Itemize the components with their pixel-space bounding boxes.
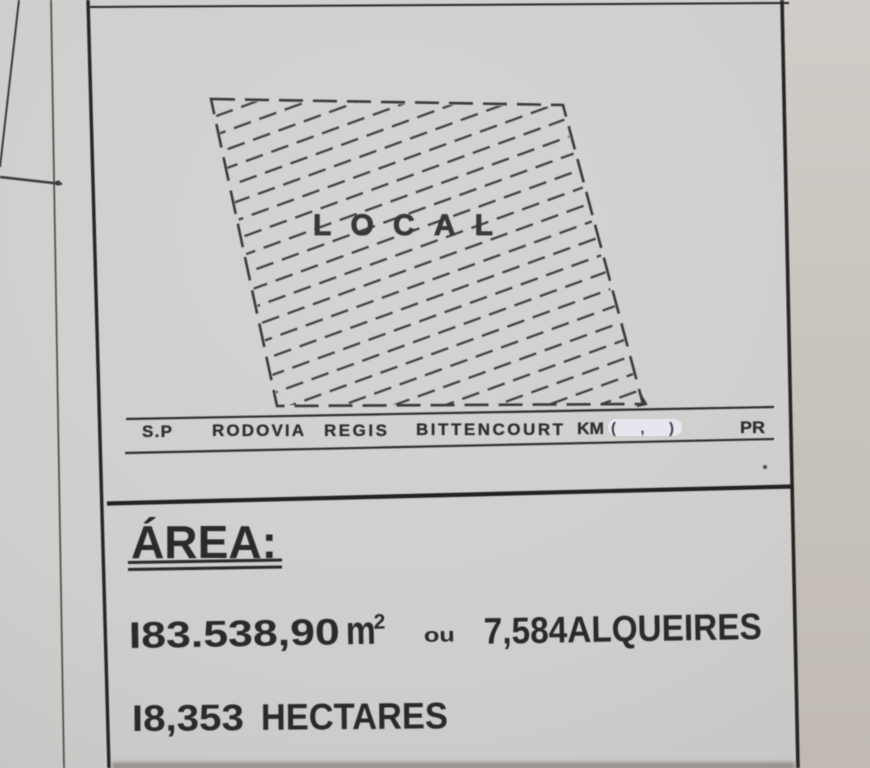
svg-text:REGIS: REGIS (324, 421, 387, 440)
svg-text:ou: ou (424, 624, 455, 647)
svg-text:PR: PR (740, 418, 765, 437)
svg-text:7,584ALQUEIRES: 7,584ALQUEIRES (483, 606, 762, 652)
svg-text:I83.538,90: I83.538,90 (128, 611, 340, 656)
svg-text:I8,353: I8,353 (132, 697, 244, 739)
svg-text:S.P: S.P (142, 422, 172, 441)
svg-text:m: m (345, 609, 376, 654)
svg-text:KM: KM (577, 419, 604, 438)
svg-text:2: 2 (373, 611, 385, 634)
svg-text:HECTARES: HECTARES (261, 695, 448, 738)
svg-text:BITTENCOURT: BITTENCOURT (416, 420, 564, 439)
